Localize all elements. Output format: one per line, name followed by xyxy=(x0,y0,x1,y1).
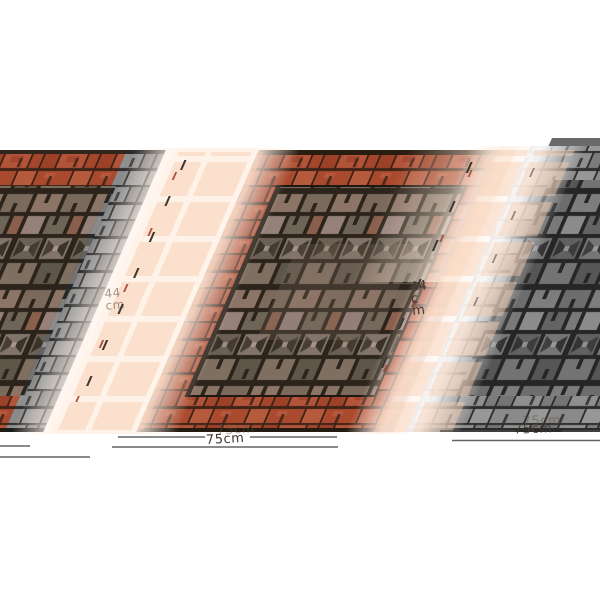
depth-dimension-label-right: 44cm xyxy=(409,280,433,318)
product-image-canvas: 44cm 44cm 75cm 75cm xyxy=(0,0,600,600)
width-dimension-label-center: 75cm xyxy=(206,433,245,447)
width-dimension-label-right: 75cm xyxy=(514,423,553,436)
width-dimension-line-left-stub xyxy=(0,446,90,457)
doormat-illustration xyxy=(0,0,600,600)
depth-dimension-label-left: 44cm xyxy=(104,286,126,312)
